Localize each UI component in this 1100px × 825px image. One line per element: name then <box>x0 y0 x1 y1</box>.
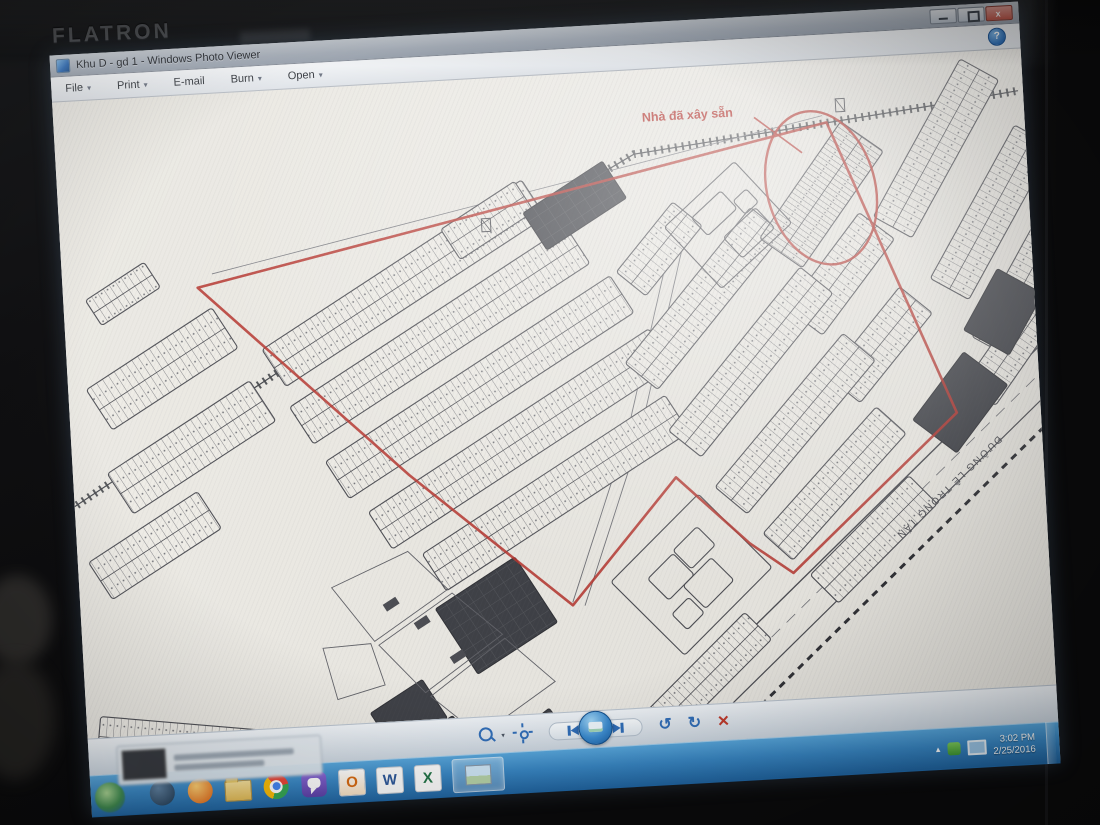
system-tray: ▴ 3:02 PM 2/25/2016 <box>935 721 1061 770</box>
slideshow-play-button[interactable] <box>578 710 614 746</box>
chevron-down-icon: ▾ <box>87 83 92 92</box>
taskbar-active-photo-viewer[interactable] <box>451 756 505 793</box>
clock-date: 2/25/2016 <box>993 744 1036 758</box>
magnifier-icon <box>478 727 493 742</box>
minimize-button[interactable] <box>929 8 957 24</box>
help-icon[interactable]: ? <box>987 27 1006 46</box>
chevron-down-icon: ▾ <box>258 73 263 82</box>
start-button[interactable] <box>94 782 126 814</box>
tray-app-icon[interactable] <box>947 741 961 755</box>
photo-of-monitor: FLATRON Khu D - gd 1 - Windows Photo Vie… <box>0 0 1100 825</box>
tray-overflow-icon[interactable]: ▴ <box>935 744 940 755</box>
folder-icon <box>224 779 252 801</box>
show-desktop-button[interactable] <box>1045 722 1056 764</box>
close-button[interactable]: x <box>985 5 1013 21</box>
taskbar-icon-excel[interactable]: X <box>414 763 442 791</box>
taskbar-clock[interactable]: 3:02 PM 2/25/2016 <box>993 732 1037 758</box>
chevron-down-icon: ▾ <box>318 70 323 79</box>
actual-size-icon <box>520 730 529 739</box>
taskbar-icon-word[interactable]: W <box>376 766 404 794</box>
background-object <box>0 575 52 665</box>
taskbar-icon-outlook[interactable]: O <box>338 768 366 796</box>
photo-content-map: Nhà đã xây sẵn ĐƯỜNG LÊ TRỌNG TẤN <box>52 48 1056 738</box>
chevron-down-icon: ▾ <box>143 80 148 89</box>
tooltip-thumbnail <box>121 748 167 780</box>
photo-viewer-app-icon <box>56 58 71 73</box>
rotate-counterclockwise-button[interactable]: ↺ <box>658 715 673 736</box>
menu-print[interactable]: Print▾ <box>117 78 148 92</box>
zoom-button[interactable]: ▾ <box>476 725 497 746</box>
previous-button[interactable] <box>567 725 579 736</box>
slideshow-icon <box>588 721 603 732</box>
excel-icon: X <box>414 763 442 791</box>
menu-email[interactable]: E-mail <box>173 75 205 89</box>
planning-map-image: Nhà đã xây sẵn ĐƯỜNG LÊ TRỌNG TẤN <box>52 48 1056 738</box>
next-button[interactable] <box>612 723 624 734</box>
navigation-pill <box>548 718 643 741</box>
menu-open[interactable]: Open▾ <box>288 68 324 82</box>
word-icon: W <box>376 766 404 794</box>
actual-size-button[interactable] <box>512 723 533 744</box>
tray-display-icon[interactable] <box>967 739 987 755</box>
background-object <box>0 660 55 780</box>
menu-file[interactable]: File▾ <box>65 81 91 94</box>
outlook-icon: O <box>338 768 366 796</box>
chevron-down-icon: ▾ <box>501 731 505 739</box>
monitor-screen: Khu D - gd 1 - Windows Photo Viewer x Fi… <box>49 2 1060 817</box>
menu-burn[interactable]: Burn▾ <box>230 72 262 86</box>
rotate-clockwise-button[interactable]: ↻ <box>687 713 702 734</box>
maximize-button[interactable] <box>957 6 985 22</box>
delete-button[interactable]: ✕ <box>717 712 731 733</box>
photo-thumbnail-icon <box>465 764 492 785</box>
